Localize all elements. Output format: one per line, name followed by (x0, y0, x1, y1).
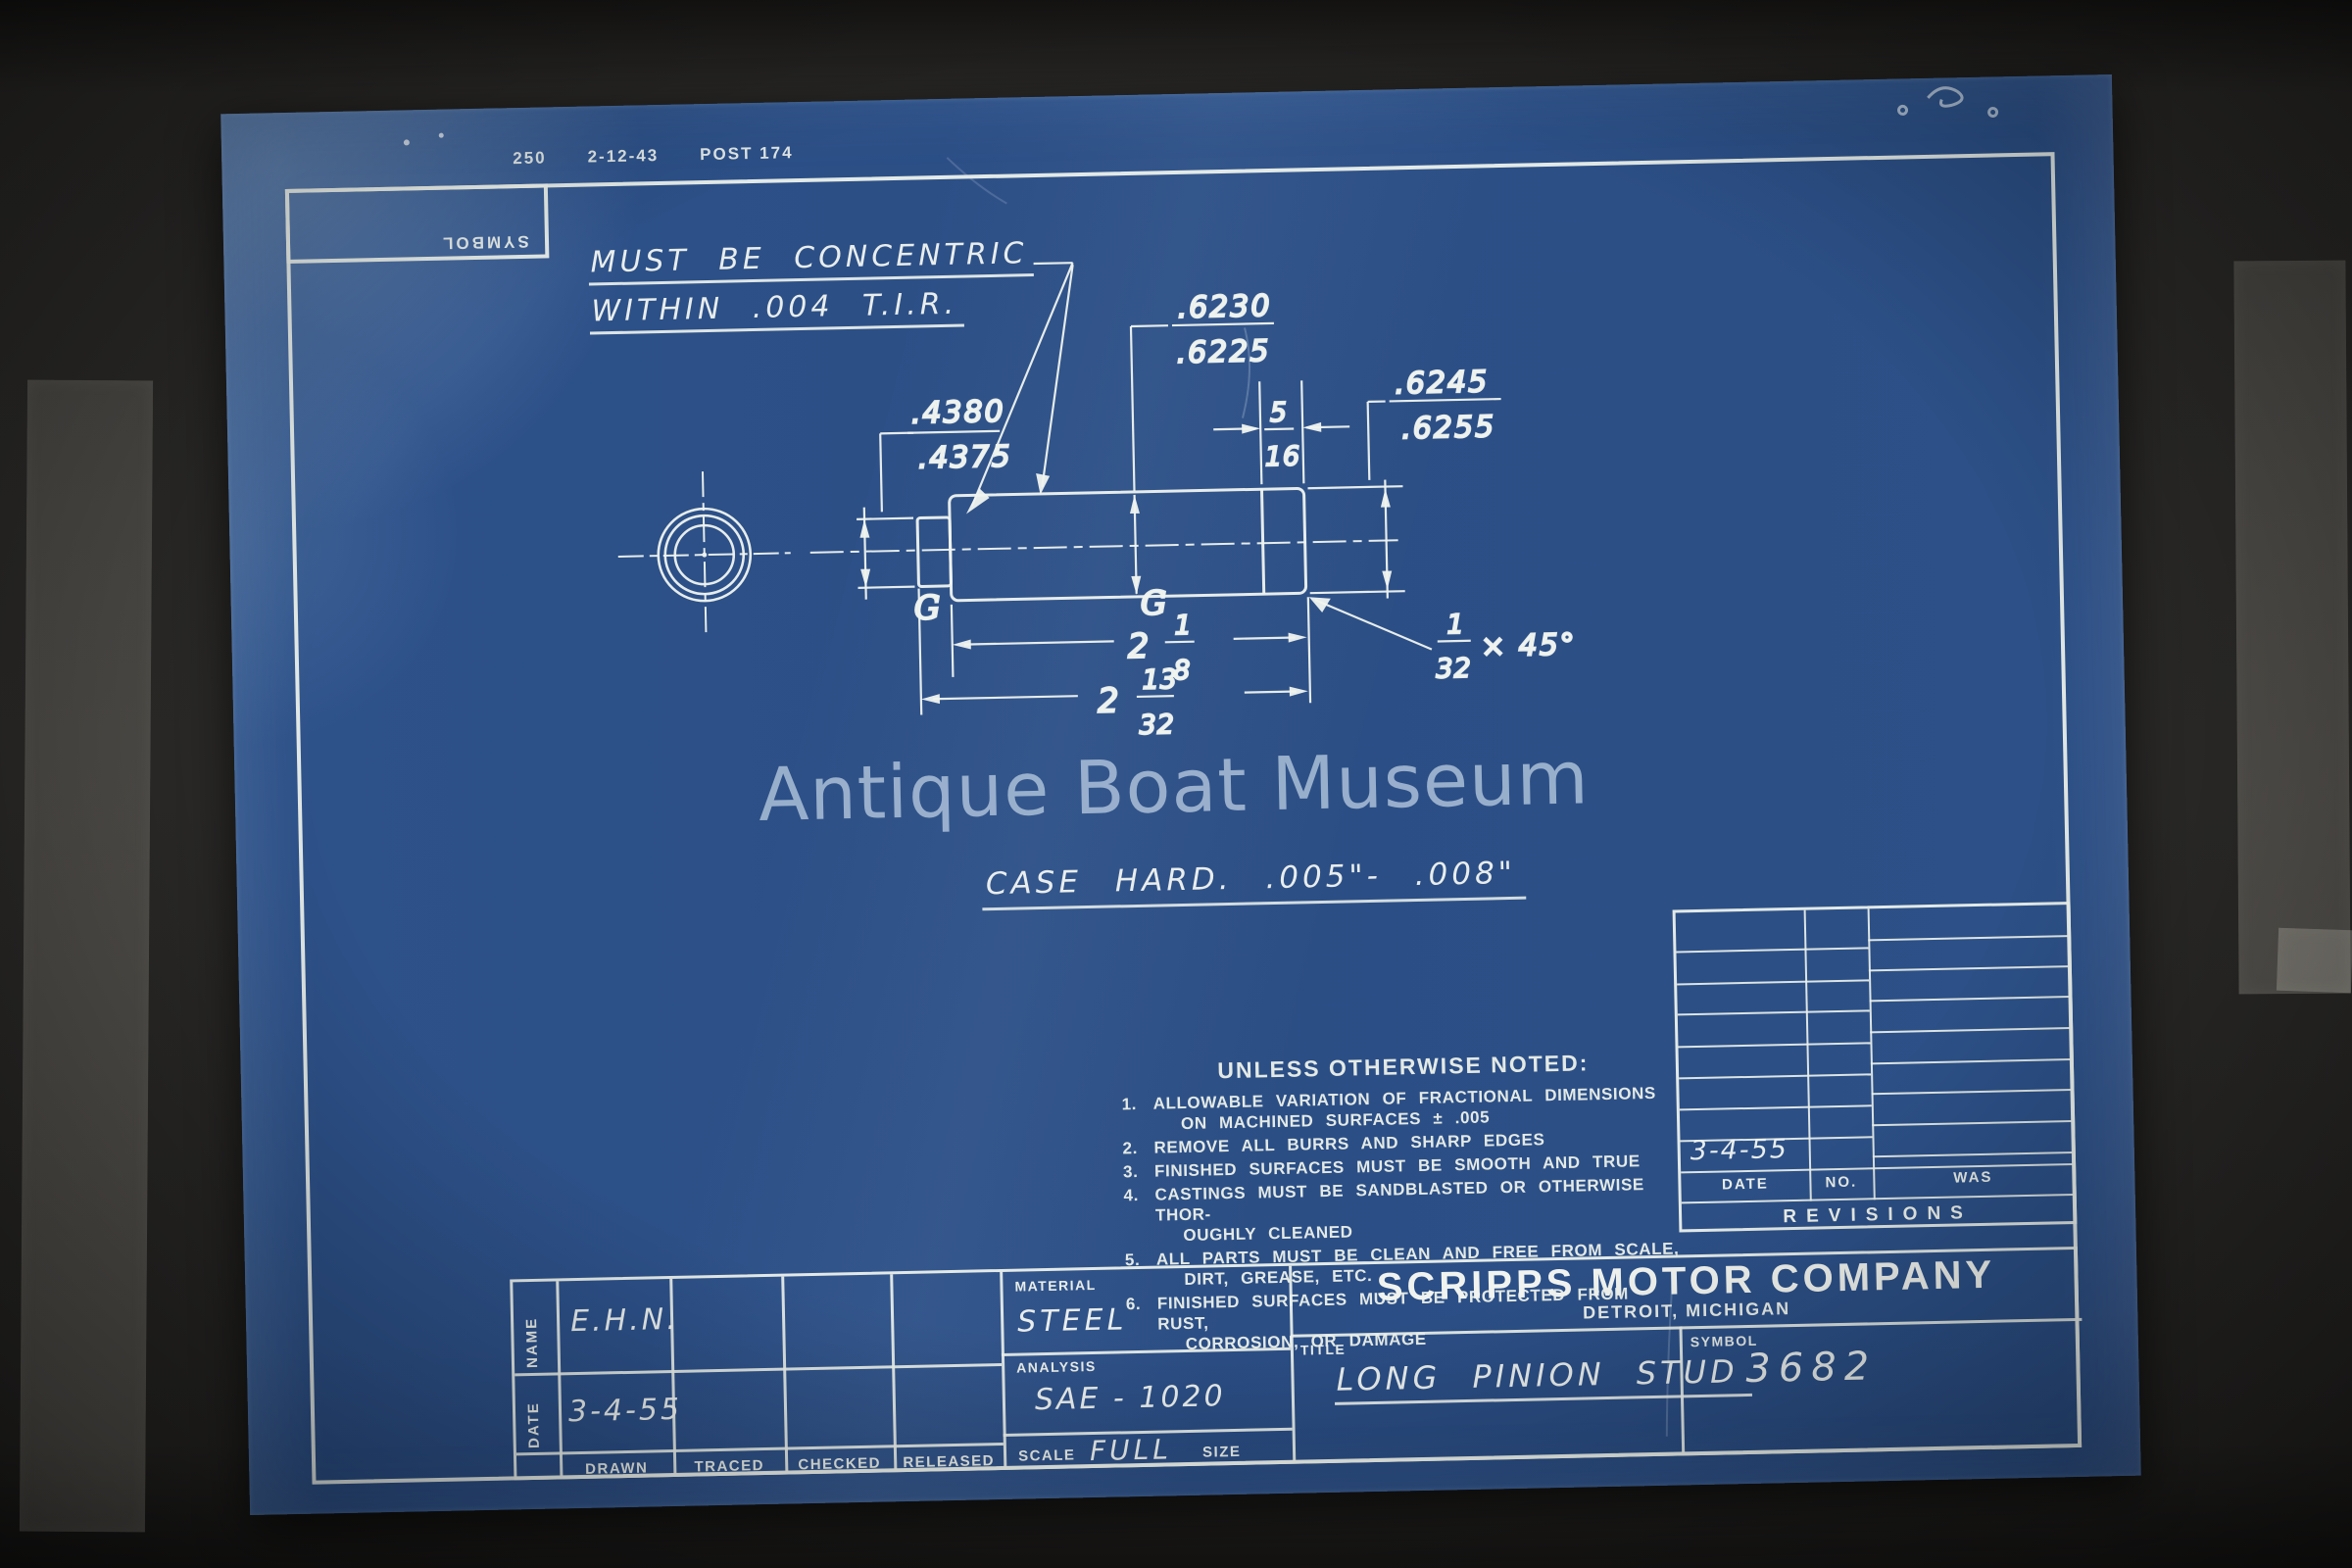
scale-label: SCALE (1018, 1446, 1076, 1464)
dim-body-len-whole: 2 (1127, 627, 1151, 666)
blueprint-sheet: 250 2-12-43 POST 174 SYMBOL (220, 74, 2141, 1515)
grind-mark-icon: G (1140, 583, 1166, 622)
revisions-divider (1804, 910, 1812, 1201)
title-block: NAME DATE E.H.N. 3-4-55 DRAWN TRACED CHE… (510, 1247, 2082, 1480)
scale-value: FULL (1090, 1433, 1172, 1467)
end-view (616, 469, 793, 640)
tape-fold-right (2277, 928, 2352, 994)
material-value: STEEL (1017, 1302, 1128, 1339)
dim-chamfer-num: 1 (1446, 610, 1465, 640)
note-concentric-line2: WITHIN .004 T.I.R. (589, 287, 963, 335)
name-row-label: NAME (523, 1294, 542, 1368)
checked-label: CHECKED (785, 1450, 894, 1477)
dim-end-dia-upper: .6245 (1395, 365, 1490, 401)
tape-strip-left (20, 380, 153, 1533)
analysis-label: ANALYSIS (1016, 1358, 1097, 1376)
dim-end-dia: .6245 .6255 (1305, 365, 1505, 600)
dim-stub-dia-lower: .4375 (917, 440, 1012, 476)
dim-stub-dia: .4380 .4375 (854, 395, 1014, 600)
dim-total-len-den: 32 (1139, 710, 1175, 741)
dim-body-dia-lower: .6225 (1176, 334, 1271, 370)
revisions-table: 3-4-55 DATE NO. WAS REVISIONS (1673, 902, 2078, 1232)
grind-mark-icon: G (914, 588, 941, 627)
note-item: 4. CASTINGS MUST BE SANDBLASTED OR OTHER… (1123, 1173, 1689, 1247)
pin-hole (439, 133, 444, 138)
dim-stub-dia-upper: .4380 (910, 395, 1005, 431)
photo-stage: 250 2-12-43 POST 174 SYMBOL (0, 0, 2352, 1568)
revisions-date-header: DATE (1681, 1175, 1809, 1195)
drawn-date: 3-4-55 (568, 1393, 683, 1429)
revisions-no-header: NO. (1809, 1173, 1873, 1191)
title-label: TITLE (1300, 1342, 1347, 1358)
dim-end-len-den: 16 (1264, 441, 1300, 472)
dim-body-len-num: 1 (1174, 611, 1193, 641)
dim-end-dia-lower: .6255 (1401, 410, 1496, 446)
dim-chamfer: 1 32 × 45° (1309, 592, 1578, 688)
pin-hole (404, 139, 410, 145)
released-label: RELEASED (894, 1448, 1004, 1475)
drawing-title: LONG PINION STUD (1334, 1352, 1752, 1405)
dim-body-dia-upper: .6230 (1177, 289, 1272, 325)
dim-total-len-num: 13 (1142, 664, 1178, 696)
dim-body-length: 2 1 8 (952, 597, 1310, 710)
symbol-number: 3682 (1745, 1344, 1878, 1392)
revisions-was-header: WAS (1873, 1167, 2073, 1188)
dim-end-len-num: 5 (1270, 398, 1289, 428)
dim-body-dia: .6230 .6225 (1125, 289, 1279, 595)
drawn-by-initials: E.H.N. (570, 1302, 679, 1339)
date-row-label: DATE (524, 1382, 542, 1448)
dim-chamfer-den: 32 (1436, 654, 1472, 685)
concentric-leaders (961, 263, 1078, 514)
dim-chamfer-angle: × 45° (1481, 628, 1578, 664)
material-label: MATERIAL (1014, 1277, 1097, 1295)
size-label: SIZE (1202, 1444, 1242, 1461)
tape-strip-right (2233, 261, 2350, 995)
analysis-value: SAE - 1020 (1035, 1379, 1226, 1417)
traced-label: TRACED (673, 1453, 785, 1480)
dim-total-length: 2 13 32 (919, 580, 1309, 745)
drawn-label: DRAWN (560, 1455, 673, 1482)
dim-total-len-whole: 2 (1098, 681, 1121, 720)
dim-end-section: 5 16 (1212, 379, 1350, 485)
centerline (810, 540, 1398, 553)
revision-date-entry: 3-4-55 (1690, 1134, 1788, 1166)
watermark-text: Antique Boat Museum (758, 734, 1590, 838)
